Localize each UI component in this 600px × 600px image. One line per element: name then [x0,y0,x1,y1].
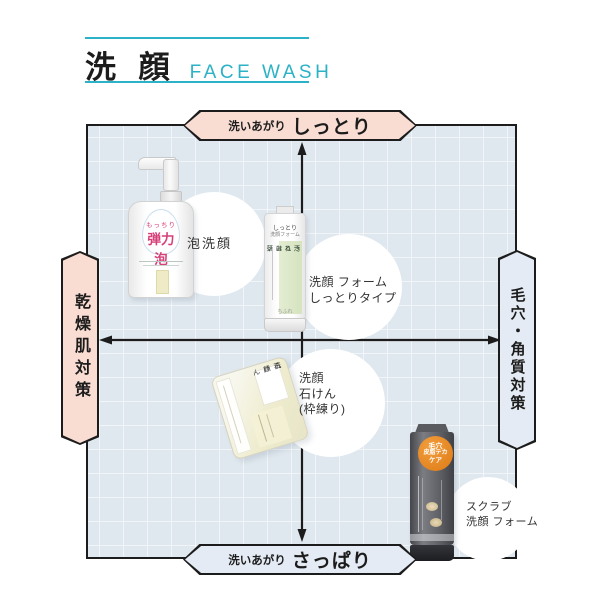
banner-top-prefix: 洗いあがり [228,118,286,134]
package-accent-strip [156,270,169,294]
banner-bottom-prefix: 洗いあがり [228,552,286,568]
package-decor-line [418,476,419,532]
soap-block: 洗顔石けん [210,355,310,460]
banner-top-label: しっとり [292,112,372,139]
product-scrub-face-wash: 毛穴 皮脂テカ ケア [407,424,457,562]
package-decor-line [422,478,423,530]
annotation-line: 洗顔 フォーム [309,274,397,290]
brand-mark: ちふれ [265,308,305,315]
banner-left-label: 乾燥肌対策 [68,293,92,403]
annotation-line: 洗顔 [299,371,346,387]
bottle-body: もっちり 弾力泡 [128,201,194,298]
scrub-sample-photo [430,518,442,527]
pore-care-badge: 毛穴 皮脂テカ ケア [418,436,453,471]
water-drop-graphic: もっちり 弾力泡 [142,209,180,255]
arrow-left-icon [99,336,112,345]
annotation-line: (枠練り) [299,402,346,418]
annotation-line: 泡洗顔 [187,233,232,252]
banner-finish-fresh: 洗いあがり さっぱり [183,544,417,575]
annotation-foam-moist: 洗顔 フォーム しっとりタイプ [309,274,397,306]
annotation-line: 石けん [299,387,346,403]
product-face-wash-foam-moist: しっとり 洗顔フォーム 汚れは落としてうるおい残す ちふれ [263,206,307,333]
package-decor-line [139,261,183,262]
banner-right-label: 毛穴・角質対策 [507,287,528,413]
annotation-foam-wash: 泡洗顔 [187,233,232,252]
product-foam-face-wash: もっちり 弾力泡 [120,154,200,302]
package-text-top2: 洗顔フォーム [265,231,305,238]
page: 洗 顔 FACE WASH 洗いあがり しっとり 洗いあがり さっぱり [0,0,600,600]
arrow-up-icon [298,142,307,155]
package-vertical-text-2: うるおい残す [264,245,300,252]
arrow-down-icon [298,529,307,542]
banner-pore-keratin-care: 毛穴・角質対策 [498,250,536,450]
annotation-line: スクラブ [466,500,538,515]
header-rule-top [85,37,309,39]
tube-body: 毛穴 皮脂テカ ケア [410,432,454,545]
annotation-soap: 洗顔 石けん (枠練り) [299,371,346,418]
annotation-line: しっとりタイプ [309,290,397,306]
badge-line-3: ケア [429,457,442,464]
scrub-sample-photo [426,502,438,511]
package-decor-line [441,480,442,520]
tube-body: しっとり 洗顔フォーム 汚れは落としてうるおい残す ちふれ [264,213,306,319]
annotation-line: 洗顔 フォーム [466,515,538,530]
annotation-scrub: スクラブ 洗顔 フォーム [466,500,538,530]
wrapper-strip [215,378,252,455]
banner-dry-skin-care: 乾燥肌対策 [61,251,99,445]
package-text-big: 弾力泡 [143,228,179,268]
banner-finish-moist: 洗いあがり しっとり [183,110,417,141]
package-decor-line [143,265,179,266]
package-decor-band [410,534,454,541]
pump-head [163,159,179,191]
package-decor-line [272,248,273,300]
tube-cap [264,318,306,332]
header-rule-bottom [85,81,309,83]
banner-bottom-label: さっぱり [292,546,372,573]
product-face-wash-soap: 洗顔石けん [214,352,306,467]
